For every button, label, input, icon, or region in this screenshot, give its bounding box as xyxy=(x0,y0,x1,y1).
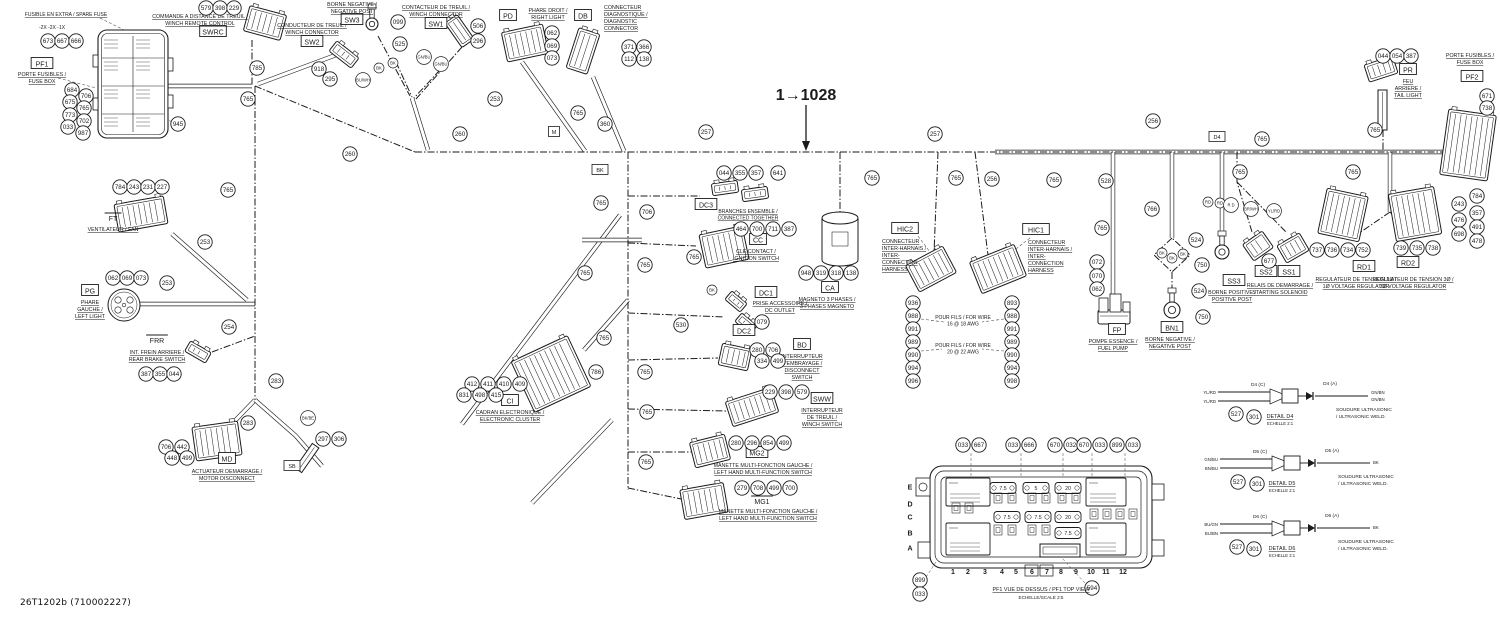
harness-wire xyxy=(628,313,724,317)
svg-text:530: 530 xyxy=(676,322,687,329)
svg-text:706: 706 xyxy=(642,209,653,216)
component-pf1: PF1PORTE FUSIBLES /FUSE BOX xyxy=(18,58,67,86)
callout-283: 283 xyxy=(241,416,255,430)
callout-448: 448 xyxy=(165,451,179,465)
svg-text:SB: SB xyxy=(288,464,296,470)
svg-text:229: 229 xyxy=(765,389,776,396)
svg-text:062: 062 xyxy=(108,275,119,282)
callout-667: 667 xyxy=(972,438,986,452)
svg-text:387: 387 xyxy=(141,371,152,378)
callout-318: 318 xyxy=(829,266,843,280)
svg-text:667: 667 xyxy=(974,442,985,449)
svg-text:366: 366 xyxy=(639,44,650,51)
svg-text:INTER-HARNAIS /: INTER-HARNAIS / xyxy=(1028,247,1073,253)
svg-text:DETAIL D6: DETAIL D6 xyxy=(1269,546,1296,552)
callout-409: 409 xyxy=(513,377,527,391)
callout-736: 736 xyxy=(1325,243,1339,257)
svg-text:BD: BD xyxy=(797,343,807,350)
svg-text:20: 20 xyxy=(1065,486,1071,492)
callout-296: 296 xyxy=(745,436,759,450)
svg-text:301: 301 xyxy=(1252,481,1263,488)
svg-text:257: 257 xyxy=(930,131,941,138)
svg-text:033: 033 xyxy=(1008,442,1019,449)
svg-text:987: 987 xyxy=(78,130,89,137)
callout-786: 786 xyxy=(589,365,603,379)
svg-text:3: 3 xyxy=(983,569,987,576)
svg-text:FEU: FEU xyxy=(1403,79,1414,85)
rd1-regulator xyxy=(1318,185,1369,242)
document-code: 26T1202b (710002227) xyxy=(20,598,131,608)
svg-text:675: 675 xyxy=(65,99,76,106)
svg-text:899: 899 xyxy=(1112,442,1123,449)
svg-text:579: 579 xyxy=(797,389,808,396)
callout-994: 994 xyxy=(906,361,920,375)
svg-text:SOUDURE ULTRASONIC: SOUDURE ULTRASONIC xyxy=(1336,407,1392,413)
svg-text:990: 990 xyxy=(1007,352,1018,359)
callout-260: 260 xyxy=(343,147,357,161)
svg-text:ARRIERE /: ARRIERE / xyxy=(1395,86,1422,92)
pf2-connector xyxy=(1440,106,1497,181)
svg-text:260: 260 xyxy=(345,151,356,158)
svg-text:DETAIL D5: DETAIL D5 xyxy=(1269,481,1296,487)
svg-text:HIC2: HIC2 xyxy=(897,227,913,234)
svg-text:411: 411 xyxy=(483,381,493,388)
callout-334: 334 xyxy=(755,354,769,368)
svg-text:CADRAN ELECTRONIQUE /: CADRAN ELECTRONIQUE / xyxy=(476,410,545,416)
callout-708: 708 xyxy=(751,481,765,495)
svg-text:033: 033 xyxy=(915,591,926,598)
svg-text:357: 357 xyxy=(751,170,762,177)
callout-528: 528 xyxy=(1099,174,1113,188)
callout-398: 398 xyxy=(213,1,227,15)
svg-text:7.5: 7.5 xyxy=(1064,531,1071,537)
svg-text:SOUDURE ULTRASONIC: SOUDURE ULTRASONIC xyxy=(1338,474,1394,480)
svg-text:INTER-: INTER- xyxy=(882,253,900,259)
callout-099: 099 xyxy=(391,15,405,29)
svg-text:412: 412 xyxy=(467,381,478,388)
callout-499: 499 xyxy=(771,354,785,368)
callout-527: 527 xyxy=(1231,475,1245,489)
svg-text:GAUCHE /: GAUCHE / xyxy=(77,307,103,313)
harness-reference-label: 1→1028 xyxy=(776,87,837,151)
callout-734: 734 xyxy=(1341,243,1355,257)
component-hic2: HIC2CONNECTEURINTER-HARNAIS /INTER-CONNE… xyxy=(882,223,927,389)
svg-text:PHARE DROIT /: PHARE DROIT / xyxy=(528,8,568,14)
svg-text:044: 044 xyxy=(719,170,730,177)
svg-text:301: 301 xyxy=(1249,414,1260,421)
svg-text:684: 684 xyxy=(67,87,78,94)
svg-text:LEFT HAND MULTI-FUNCTION SWITC: LEFT HAND MULTI-FUNCTION SWITCH xyxy=(714,470,812,476)
note: BRANCHES ENSEMBLE /CONNECTED TOGETHER xyxy=(718,209,779,222)
detail-view-D6: D6 (C)D6 (A)BU/GNBU/BNBK527301DETAIL D6E… xyxy=(1204,513,1394,558)
callout-253: 253 xyxy=(198,235,212,249)
svg-text:BK: BK xyxy=(1373,460,1379,465)
callout-253: 253 xyxy=(160,276,174,290)
svg-text:283: 283 xyxy=(243,420,254,427)
svg-text:SS2: SS2 xyxy=(1259,270,1272,277)
callout-675: 675 xyxy=(63,95,77,109)
rd2-regulator xyxy=(1388,183,1442,241)
svg-text:INTER-HARNAIS /: INTER-HARNAIS / xyxy=(882,246,927,252)
svg-text:R D: R D xyxy=(1227,203,1234,208)
svg-text:527: 527 xyxy=(1233,479,1244,486)
svg-text:700: 700 xyxy=(752,226,763,233)
svg-text:360: 360 xyxy=(600,121,611,128)
svg-text:BORNE NEGATIVE /: BORNE NEGATIVE / xyxy=(1145,337,1195,343)
svg-text:PORTE FUSIBLES /: PORTE FUSIBLES / xyxy=(1446,53,1495,59)
svg-text:784: 784 xyxy=(115,184,126,191)
svg-text:BK: BK xyxy=(1159,251,1165,256)
svg-text:671: 671 xyxy=(1482,93,1493,100)
svg-text:MANETTE MULTI-FONCTION GAUCHE: MANETTE MULTI-FONCTION GAUCHE / xyxy=(719,509,818,515)
callout-319: 319 xyxy=(814,266,828,280)
svg-text:BK: BK xyxy=(1373,525,1379,530)
svg-text:/ ULTRASONIC WELD.: / ULTRASONIC WELD. xyxy=(1338,546,1388,552)
component-ca: CAMAGNETO 3 PHASES /3 PHASES MAGNETO9483… xyxy=(798,266,858,310)
svg-text:A: A xyxy=(907,546,912,553)
callout-750: 750 xyxy=(1195,258,1209,272)
callout-765: 765 xyxy=(221,183,235,197)
db-connector xyxy=(566,25,601,75)
svg-text:YL/RD: YL/RD xyxy=(1268,209,1280,214)
harness-wire xyxy=(628,243,696,246)
callout-033: 033 xyxy=(956,438,970,452)
svg-text:POUR FILS / FOR WIRE: POUR FILS / FOR WIRE xyxy=(935,343,991,349)
svg-text:677: 677 xyxy=(1264,258,1275,265)
svg-text:893: 893 xyxy=(1007,300,1018,307)
svg-text:SOUDURE ULTRASONIC: SOUDURE ULTRASONIC xyxy=(1338,539,1394,545)
svg-text:GN/BU: GN/BU xyxy=(418,55,431,60)
svg-text:387: 387 xyxy=(784,226,795,233)
svg-text:673: 673 xyxy=(43,38,54,45)
component-bn1: BN1BORNE NEGATIVE /NEGATIVE POST xyxy=(1145,322,1195,351)
callout-784: 784 xyxy=(113,180,127,194)
svg-text:524: 524 xyxy=(1194,288,1205,295)
svg-text:SW1: SW1 xyxy=(428,22,443,29)
sw2-connector xyxy=(329,38,361,68)
callout-899: 899 xyxy=(1110,438,1124,452)
callout-738: 738 xyxy=(1480,101,1494,115)
svg-text:765: 765 xyxy=(640,262,651,269)
svg-text:DIAGNOSTIC: DIAGNOSTIC xyxy=(604,19,637,25)
svg-text:B: B xyxy=(907,531,912,538)
callout-673: 673 xyxy=(41,34,55,48)
harness-wire xyxy=(414,70,440,98)
svg-text:410: 410 xyxy=(499,381,510,388)
wire-color-tag: YL/RD xyxy=(1267,204,1282,219)
svg-text:HARNESS: HARNESS xyxy=(882,267,908,273)
svg-text:283: 283 xyxy=(271,378,282,385)
harness-wire xyxy=(982,349,1004,351)
svg-text:ACTUATEUR DEMARRAGE /: ACTUATEUR DEMARRAGE / xyxy=(192,469,263,475)
svg-text:773: 773 xyxy=(65,112,76,119)
svg-text:784: 784 xyxy=(1472,193,1483,200)
callout-524: 524 xyxy=(1192,284,1206,298)
svg-text:3 PHASES MAGNETO: 3 PHASES MAGNETO xyxy=(800,304,854,310)
callout-670: 670 xyxy=(1048,438,1062,452)
svg-text:301: 301 xyxy=(1249,546,1260,553)
callout-296: 296 xyxy=(471,34,485,48)
component-sw1: SW1CONTACTEUR DE TREUIL /WINCH CONNECTOR… xyxy=(402,5,485,48)
svg-text:REGULATEUR DE TENSION 3Ø /: REGULATEUR DE TENSION 3Ø / xyxy=(1372,277,1454,283)
pf1-fusebox xyxy=(93,30,173,138)
svg-text:M: M xyxy=(552,130,557,136)
svg-text:306: 306 xyxy=(334,436,345,443)
svg-text:948: 948 xyxy=(801,270,812,277)
svg-text:DC OUTLET: DC OUTLET xyxy=(765,308,796,314)
svg-text:5: 5 xyxy=(1035,486,1038,492)
svg-text:667: 667 xyxy=(57,38,68,45)
svg-text:RD: RD xyxy=(1205,200,1211,205)
callout-948: 948 xyxy=(799,266,813,280)
callout-062: 062 xyxy=(106,271,120,285)
callout-243: 243 xyxy=(1452,197,1466,211)
svg-text:988: 988 xyxy=(908,313,919,320)
svg-text:991: 991 xyxy=(908,326,919,333)
svg-text:256: 256 xyxy=(1148,118,1159,125)
svg-text:INTERRUPTEUR: INTERRUPTEUR xyxy=(781,354,823,360)
wire-color-tag: GN/BU xyxy=(434,57,449,72)
ss1-solenoid xyxy=(1275,230,1309,263)
svg-text:1: 1 xyxy=(951,569,955,576)
svg-text:528: 528 xyxy=(1101,178,1112,185)
callout-765: 765 xyxy=(640,405,654,419)
harness-wire xyxy=(975,152,988,255)
svg-text:RD1: RD1 xyxy=(1357,265,1371,272)
svg-text:D5 (A): D5 (A) xyxy=(1325,448,1339,454)
svg-text:MANETTE MULTI-FONCTION GAUCHE: MANETTE MULTI-FONCTION GAUCHE / xyxy=(714,463,813,469)
svg-text:HARNESS: HARNESS xyxy=(1028,268,1054,274)
callout-033: 033 xyxy=(1006,438,1020,452)
svg-text:SWW: SWW xyxy=(813,397,831,404)
svg-text:/ ULTRASONIC WELD.: / ULTRASONIC WELD. xyxy=(1336,414,1386,420)
callout-033: 033 xyxy=(913,587,927,601)
svg-text:7.5: 7.5 xyxy=(1034,515,1041,521)
svg-text:032: 032 xyxy=(1066,442,1077,449)
svg-text:989: 989 xyxy=(908,339,919,346)
svg-text:PHARE: PHARE xyxy=(81,300,100,306)
callout-527: 527 xyxy=(1229,407,1243,421)
svg-text:033: 033 xyxy=(63,124,74,131)
svg-text:7.5: 7.5 xyxy=(1003,515,1010,521)
callout-893: 893 xyxy=(1005,296,1019,310)
svg-text:670: 670 xyxy=(1079,442,1090,449)
callout-062: 062 xyxy=(545,26,559,40)
callout-070: 070 xyxy=(1090,269,1104,283)
svg-text:765: 765 xyxy=(79,105,90,112)
svg-text:YL/RD: YL/RD xyxy=(1203,390,1216,395)
svg-text:DC1: DC1 xyxy=(759,291,773,298)
svg-text:PF1: PF1 xyxy=(36,62,49,69)
svg-text:996: 996 xyxy=(908,378,919,385)
svg-text:PF1 VUE DE DESSUS / PF1 TOP VI: PF1 VUE DE DESSUS / PF1 TOP VIEW xyxy=(992,587,1090,593)
callout-387: 387 xyxy=(139,367,153,381)
svg-text:750: 750 xyxy=(1197,262,1208,269)
callout-079: 079 xyxy=(755,315,769,329)
svg-text:3Ø VOLTAGE REGULATOR: 3Ø VOLTAGE REGULATOR xyxy=(1380,284,1447,290)
bd-connector xyxy=(718,340,753,371)
svg-text:739: 739 xyxy=(1396,245,1407,252)
callout-530: 530 xyxy=(674,318,688,332)
svg-text:296: 296 xyxy=(747,440,758,447)
callout-260: 260 xyxy=(453,127,467,141)
callout-698: 698 xyxy=(1452,227,1466,241)
svg-text:318: 318 xyxy=(831,270,842,277)
callout-355: 355 xyxy=(153,367,167,381)
svg-text:033: 033 xyxy=(958,442,969,449)
svg-text:CONNECTION: CONNECTION xyxy=(1028,261,1064,267)
svg-text:SW2: SW2 xyxy=(304,40,319,47)
svg-text:ECHELLE 2:1: ECHELLE 2:1 xyxy=(1269,553,1296,558)
svg-text:033: 033 xyxy=(1095,442,1106,449)
callout-752: 752 xyxy=(1356,243,1370,257)
callout-765: 765 xyxy=(578,266,592,280)
svg-text:BORNE NEGATIVE /: BORNE NEGATIVE / xyxy=(327,2,377,8)
svg-text:491: 491 xyxy=(1472,224,1483,231)
svg-text:D'EMBRAYAGE /: D'EMBRAYAGE / xyxy=(782,361,823,367)
svg-text:TAIL LIGHT: TAIL LIGHT xyxy=(1394,93,1422,99)
wire-color-tag: BR/WH xyxy=(1244,202,1259,217)
svg-text:ECHELLE 2:1: ECHELLE 2:1 xyxy=(1267,421,1294,426)
svg-text:527: 527 xyxy=(1231,411,1242,418)
callout-499: 499 xyxy=(777,436,791,450)
harness-wire xyxy=(921,349,942,351)
callout-072: 072 xyxy=(1090,255,1104,269)
svg-text:DB: DB xyxy=(578,14,588,21)
svg-text:498: 498 xyxy=(475,392,486,399)
svg-text:765: 765 xyxy=(573,110,584,117)
callout-711: 711 xyxy=(766,222,780,236)
svg-text:918: 918 xyxy=(314,66,325,73)
svg-text:INTER-: INTER- xyxy=(1028,254,1046,260)
svg-text:786: 786 xyxy=(591,369,602,376)
callout-991: 991 xyxy=(1005,322,1019,336)
component-rd2: RD2REGULATEUR DE TENSION 3Ø /3Ø VOLTAGE … xyxy=(1372,241,1454,290)
svg-text:ELECTRONIC CLUSTER: ELECTRONIC CLUSTER xyxy=(480,417,541,423)
wire-color-tag: BK xyxy=(707,285,717,295)
wire-color-tag: BK/BE xyxy=(301,411,316,426)
bn1-terminal xyxy=(1164,288,1180,318)
harness-wire xyxy=(934,152,938,253)
callout-138: 138 xyxy=(637,52,651,66)
callout-765: 765 xyxy=(241,92,255,106)
svg-text:765: 765 xyxy=(642,409,653,416)
svg-text:DIAGNOSTIQUE /: DIAGNOSTIQUE / xyxy=(604,12,648,18)
callout-415: 415 xyxy=(489,388,503,402)
svg-text:765: 765 xyxy=(1049,177,1060,184)
callout-765: 765 xyxy=(1255,132,1269,146)
svg-text:073: 073 xyxy=(136,275,147,282)
harness-wire xyxy=(412,98,428,150)
wire-color-tag: BK xyxy=(388,58,398,68)
svg-text:442: 442 xyxy=(177,444,188,451)
svg-text:RD2: RD2 xyxy=(1401,261,1415,268)
svg-text:998: 998 xyxy=(1007,378,1018,385)
svg-text:BK: BK xyxy=(596,168,604,174)
svg-text:D6 (C): D6 (C) xyxy=(1253,514,1268,520)
wire-marker-box: M xyxy=(549,127,560,137)
svg-text:D6 (A): D6 (A) xyxy=(1325,513,1339,519)
svg-text:666: 666 xyxy=(71,38,82,45)
svg-text:VENTILATEUR / FAN: VENTILATEUR / FAN xyxy=(88,227,139,233)
wire-color-tag: BK xyxy=(1178,249,1188,259)
callout-491: 491 xyxy=(1470,220,1484,234)
callout-033: 033 xyxy=(1126,438,1140,452)
callout-766: 766 xyxy=(1145,202,1159,216)
callout-667: 667 xyxy=(55,34,69,48)
svg-text:NEGATIVE POST: NEGATIVE POST xyxy=(1149,344,1192,350)
svg-text:579: 579 xyxy=(201,5,212,12)
svg-text:4: 4 xyxy=(1000,569,1004,576)
svg-text:MG1: MG1 xyxy=(754,499,769,506)
svg-text:765: 765 xyxy=(1257,136,1268,143)
svg-text:738: 738 xyxy=(1428,245,1439,252)
svg-text:506: 506 xyxy=(473,23,484,30)
callout-301: 301 xyxy=(1250,477,1264,491)
wire-color-tag: GN/BU xyxy=(417,50,432,65)
callout-700: 700 xyxy=(783,481,797,495)
svg-text:NEGATIVE POST: NEGATIVE POST xyxy=(331,9,374,15)
svg-text:ECHELLE 2:1: ECHELLE 2:1 xyxy=(1269,488,1296,493)
svg-text:766: 766 xyxy=(1147,206,1158,213)
pg-connector xyxy=(108,289,140,321)
svg-text:PR: PR xyxy=(1403,68,1413,75)
callout-700: 700 xyxy=(750,222,764,236)
callout-499: 499 xyxy=(180,451,194,465)
callout-990: 990 xyxy=(1005,348,1019,362)
callout-297: 297 xyxy=(316,432,330,446)
svg-text:478: 478 xyxy=(1472,238,1483,245)
svg-text:-2X -2X -1X: -2X -2X -1X xyxy=(39,25,66,31)
callout-256: 256 xyxy=(1146,114,1160,128)
callout-073: 073 xyxy=(545,51,559,65)
callout-499: 499 xyxy=(767,481,781,495)
svg-text:254: 254 xyxy=(224,324,235,331)
callout-280: 280 xyxy=(729,436,743,450)
harness-wire xyxy=(532,420,612,503)
svg-text:765: 765 xyxy=(580,270,591,277)
svg-text:RD: RD xyxy=(1217,201,1223,206)
svg-text:229: 229 xyxy=(229,5,240,12)
svg-text:319: 319 xyxy=(816,270,827,277)
svg-text:296: 296 xyxy=(473,38,484,45)
svg-text:765: 765 xyxy=(223,187,234,194)
wire-color-tag: BK xyxy=(374,63,384,73)
svg-text:499: 499 xyxy=(779,440,790,447)
svg-text:DISCONNECT: DISCONNECT xyxy=(784,368,820,374)
svg-text:STARTING SOLENOID: STARTING SOLENOID xyxy=(1252,290,1307,296)
callout-283: 283 xyxy=(269,374,283,388)
callout-257: 257 xyxy=(928,127,942,141)
svg-text:253: 253 xyxy=(490,96,501,103)
wiring-diagram-page: PF1PORTE FUSIBLES /FUSE BOXSWRCCOMMANDE … xyxy=(0,0,1500,632)
callout-229: 229 xyxy=(763,385,777,399)
wire-color-tag: R D xyxy=(1224,198,1239,213)
callout-765: 765 xyxy=(77,101,91,115)
svg-text:765: 765 xyxy=(1097,225,1108,232)
svg-text:CONNECTEUR: CONNECTEUR xyxy=(604,5,642,11)
svg-text:138: 138 xyxy=(639,56,650,63)
svg-text:LEFT LIGHT: LEFT LIGHT xyxy=(75,314,106,320)
svg-text:765: 765 xyxy=(689,254,700,261)
component-frr: FRRINT. FREIN ARRIERE /REAR BRAKE SWITCH… xyxy=(129,335,186,381)
component-swrc: SWRCCOMMANDE A DISTANCE DE TREUIL /WINCH… xyxy=(152,1,248,37)
svg-text:765: 765 xyxy=(599,335,610,342)
note: FUSIBLE EN EXTRA / SPARE FUSE xyxy=(25,12,108,18)
svg-text:WINCH CONNECTOR: WINCH CONNECTOR xyxy=(285,30,339,36)
svg-text:CONDUCTEUR DE TREUIL /: CONDUCTEUR DE TREUIL / xyxy=(277,23,347,29)
callout-988: 988 xyxy=(906,309,920,323)
